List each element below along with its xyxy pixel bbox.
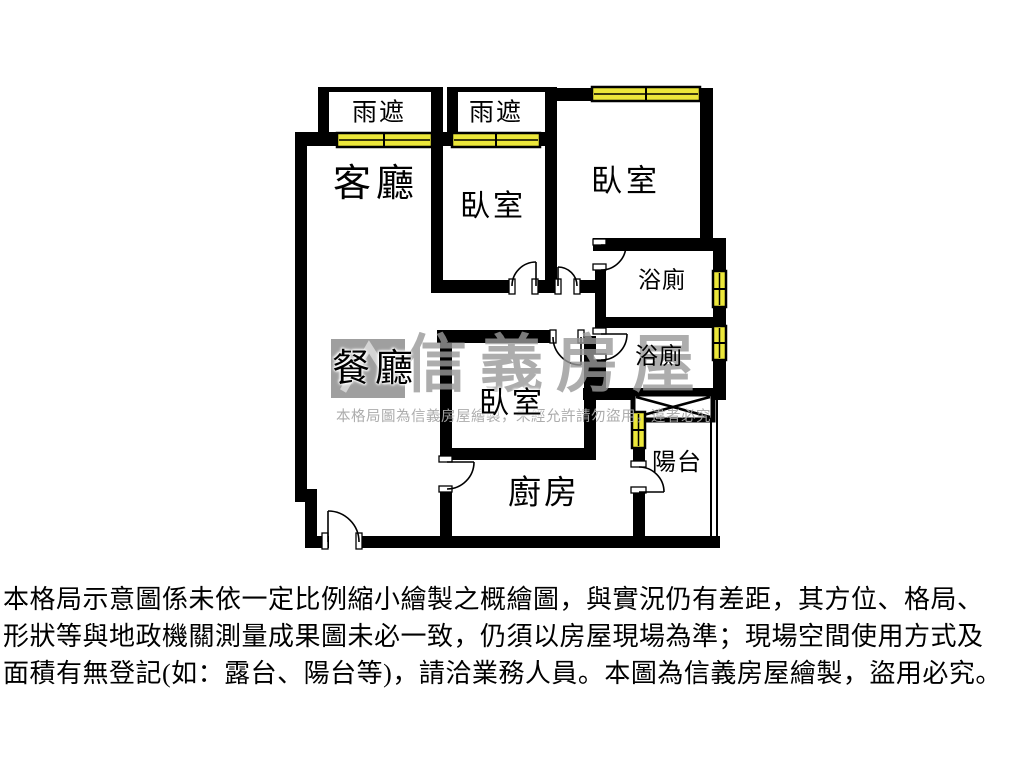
room-label-bedroom-top-right: 臥室 [591,166,661,197]
room-label-dining: 餐廳 [332,350,418,388]
room-label-balcony: 陽台 [652,451,702,475]
canopy-label-left: 雨遮 [352,101,406,126]
room-label-kitchen: 廚房 [508,478,580,511]
room-label-bathroom-upper: 浴廁 [638,269,686,292]
disclaimer-text: 本格局示意圖係未依一定比例縮小繪製之概繪圖，與實況仍有差距，其方位、格局、 形狀… [3,581,1021,692]
room-label-bedroom-center: 臥室 [479,389,545,419]
floorplan-page: 信義房屋 本格局圖為信義房屋繪製，未經允許請勿盜用，違者必究 雨遮 雨遮 客廳 … [0,0,1024,768]
canopy-label-right: 雨遮 [469,101,523,126]
room-label-bedroom-top-middle: 臥室 [460,192,526,222]
disclaimer-line-3: 面積有無登記(如：露台、陽台等)，請洽業務人員。本圖為信義房屋繪製，盜用必究。 [3,655,1021,692]
disclaimer-line-1: 本格局示意圖係未依一定比例縮小繪製之概繪圖，與實況仍有差距，其方位、格局、 [3,581,1021,618]
room-label-living: 客廳 [333,165,419,203]
disclaimer-line-2: 形狀等與地政機關測量成果圖未必一致，仍須以房屋現場為準；現場空間使用方式及 [3,618,1021,655]
room-label-bathroom-lower: 浴廁 [635,345,683,368]
